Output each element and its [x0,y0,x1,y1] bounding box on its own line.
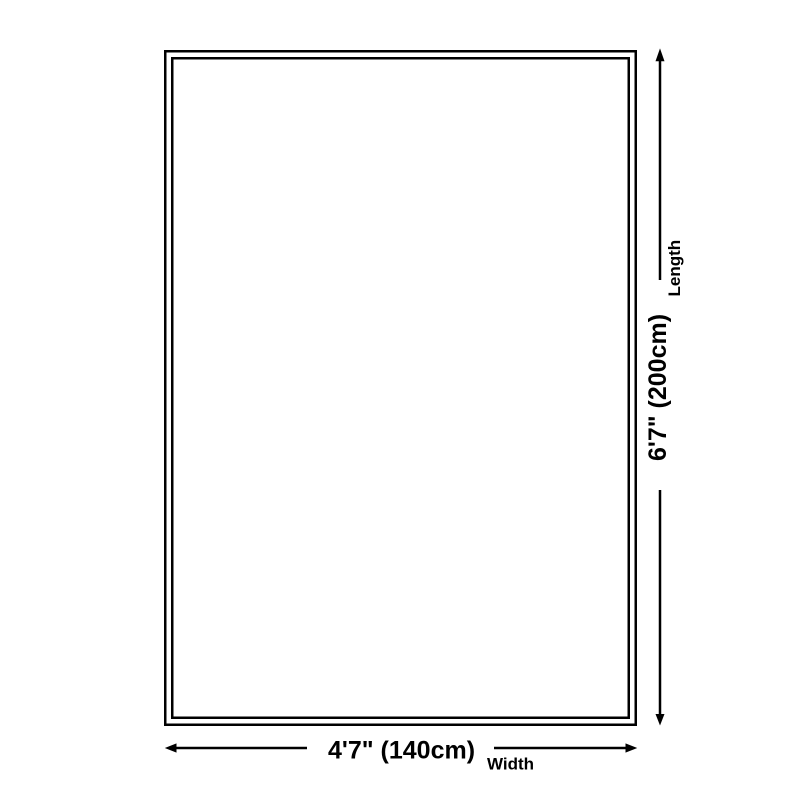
svg-text:Width: Width [487,755,534,774]
svg-text:4'7" (140cm): 4'7" (140cm) [328,736,475,764]
svg-text:Length: Length [665,240,684,297]
svg-text:6'7" (200cm): 6'7" (200cm) [644,314,672,461]
